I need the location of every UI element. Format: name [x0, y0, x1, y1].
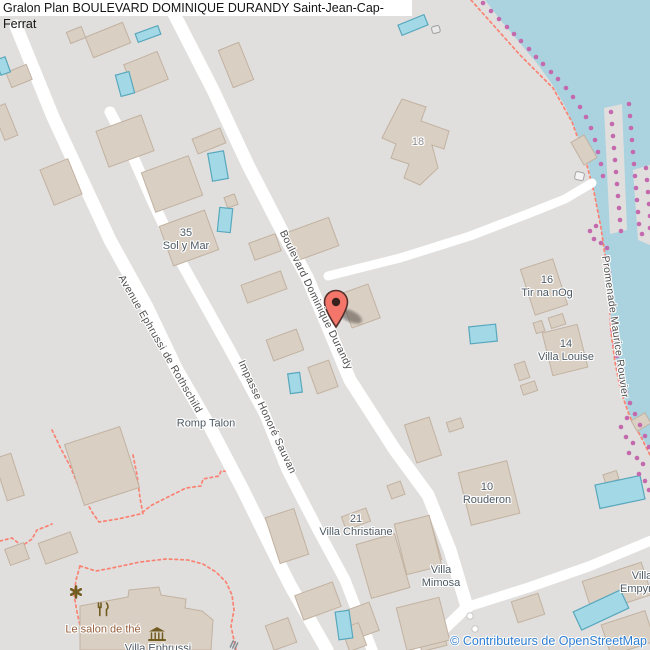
coast-dot — [505, 25, 510, 30]
coast-dot — [616, 194, 621, 199]
coast-dot — [619, 229, 624, 234]
coast-dot — [628, 114, 633, 119]
coast-dot — [630, 138, 635, 143]
coast-dot — [593, 138, 598, 143]
coast-dot — [644, 166, 649, 171]
coast-dot — [637, 222, 642, 227]
coast-dot — [601, 174, 606, 179]
coast-dot — [564, 86, 569, 91]
coast-dot — [618, 218, 623, 223]
coast-dot — [614, 170, 619, 175]
coast-dot — [611, 134, 616, 139]
coast-dot — [599, 241, 604, 246]
coast-dot — [637, 472, 642, 477]
coast-dot — [635, 456, 640, 461]
coast-dot — [512, 32, 517, 37]
coast-dot — [611, 330, 616, 335]
coast-dot — [519, 39, 524, 44]
coast-dot — [624, 390, 629, 395]
coast-dot — [497, 17, 502, 22]
coast-dot — [631, 441, 636, 446]
coast-dot — [627, 102, 632, 107]
coast-dot — [592, 237, 597, 242]
coast-dot — [534, 55, 539, 60]
coast-dot — [610, 122, 615, 127]
coast-dot — [541, 62, 546, 67]
coast-dot — [634, 186, 639, 191]
pool — [217, 207, 232, 232]
coast-dot — [607, 270, 612, 275]
coast-dot — [631, 150, 636, 155]
coast-dot — [632, 162, 637, 167]
coast-dot — [619, 425, 624, 430]
coast-dot — [629, 126, 634, 131]
coast-dot — [624, 435, 629, 440]
coast-dot — [628, 401, 633, 406]
coast-dot — [584, 115, 589, 120]
small-box-icon — [574, 171, 584, 181]
coast-dot — [610, 318, 615, 323]
coast-dot — [609, 110, 614, 115]
coast-dot — [609, 306, 614, 311]
coast-dot — [627, 451, 632, 456]
coast-dot — [589, 126, 594, 131]
coast-dot — [481, 1, 486, 6]
coast-dot — [571, 95, 576, 100]
coast-dot — [613, 158, 618, 163]
coast-dot — [527, 47, 532, 52]
coast-dot — [489, 9, 494, 14]
coast-dot — [599, 162, 604, 167]
small-box-icon — [431, 25, 441, 34]
coast-dot — [615, 182, 620, 187]
coast-dot — [635, 198, 640, 203]
coast-dot — [638, 423, 643, 428]
coast-dot — [588, 229, 593, 234]
coast-dot — [594, 224, 599, 229]
coast-dot — [645, 178, 650, 183]
coast-dot — [617, 206, 622, 211]
coast-dot — [643, 479, 648, 484]
osm-attribution-link[interactable]: © Contributeurs de OpenStreetMap — [450, 634, 647, 648]
pool — [469, 324, 498, 344]
coast-dot — [633, 412, 638, 417]
coast-dot — [606, 258, 611, 263]
coast-dot — [636, 210, 641, 215]
coast-dot — [549, 70, 554, 75]
coast-dot — [608, 282, 613, 287]
coast-dot — [608, 294, 613, 299]
coast-dot — [633, 174, 638, 179]
coast-dot — [612, 146, 617, 151]
coast-dot — [640, 232, 645, 237]
coast-dot — [641, 462, 646, 467]
coast-dot — [620, 378, 625, 383]
map-canvas[interactable]: Boulevard Dominique Durandy Avenue Ephru… — [0, 0, 650, 650]
coast-dot — [617, 366, 622, 371]
coast-dot — [605, 246, 610, 251]
page-title: Gralon Plan BOULEVARD DOMINIQUE DURANDY … — [0, 0, 412, 16]
coast-dot — [556, 77, 561, 82]
map-graphics — [0, 0, 650, 650]
coast-dot — [625, 416, 630, 421]
coast-dot — [596, 150, 601, 155]
coast-dot — [613, 342, 618, 347]
coast-dot — [615, 354, 620, 359]
coast-dot — [578, 105, 583, 110]
pool — [288, 372, 303, 393]
coast-dot — [643, 434, 648, 439]
